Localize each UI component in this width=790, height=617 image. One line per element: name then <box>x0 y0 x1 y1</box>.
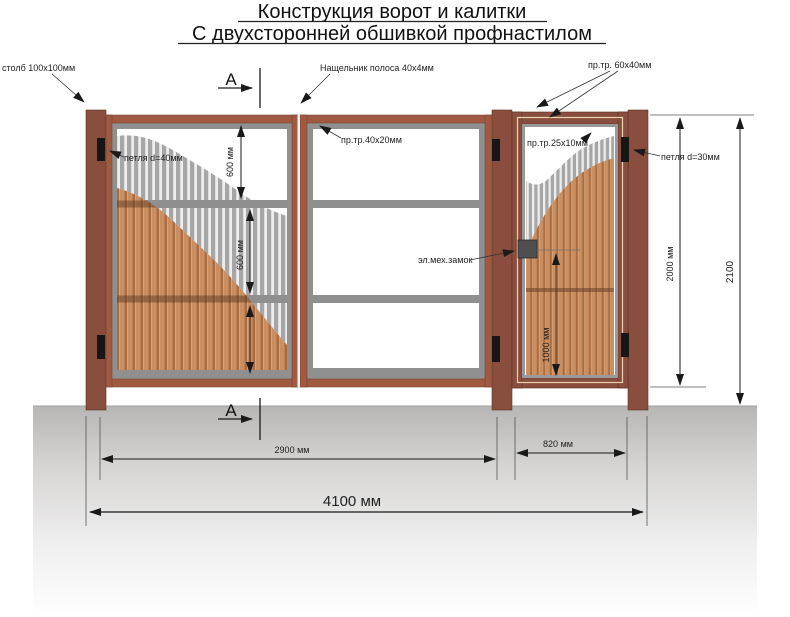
hinge-wicket-top <box>621 137 629 162</box>
cross-rail-1 <box>313 200 479 208</box>
wicket: 1000 мм <box>512 112 628 388</box>
right-post <box>628 110 648 410</box>
callout-hinge-40-label: петля d=40мм <box>124 153 183 163</box>
gate-construction-drawing: Конструкция ворот и калитки С двухсторон… <box>0 0 790 617</box>
callout-lock-label: эл.мех.замок <box>418 255 472 265</box>
hinge-wicket-bottom <box>621 333 629 357</box>
dim-panel-top-600-label: 600 мм <box>225 147 235 177</box>
title-line-1: Конструкция ворот и калитки <box>258 1 527 23</box>
title: Конструкция ворот и калитки С двухсторон… <box>178 1 606 45</box>
dim-panel-mid-600-label: 600 мм <box>235 240 245 270</box>
callout-tube-60x40: пр.тр. 60x40мм <box>537 60 651 117</box>
dim-total-width-label: 4100 мм <box>323 493 381 510</box>
callout-post: столб 100x100мм <box>2 63 84 102</box>
callout-hinge-30-label: петля d=30мм <box>661 152 720 162</box>
section-letter-top: А <box>225 70 237 89</box>
hinge-left-bottom <box>97 335 105 359</box>
dim-total-height-label: 2100 <box>725 260 736 283</box>
dim-lock-height-label: 1000 мм <box>541 328 551 363</box>
dim-wicket-width-label: 820 мм <box>543 439 573 449</box>
callout-cover-strip-label: Нащельник полоса 40x4мм <box>320 63 434 73</box>
section-marker-top <box>218 68 260 108</box>
hinge-left-top <box>97 138 105 161</box>
cross-rail-2 <box>313 295 479 303</box>
cover-strip <box>298 115 301 387</box>
ground <box>33 406 757 612</box>
drawing-page: Конструкция ворот и калитки С двухсторон… <box>0 0 790 617</box>
dim-gate-height-label: 2000 мм <box>665 247 675 282</box>
callout-tube-25x10-label: пр.тр.25x10мм <box>527 138 588 148</box>
dim-total-height: 2100 <box>725 118 740 404</box>
callout-tube-60x40-label: пр.тр. 60x40мм <box>588 60 651 70</box>
callout-cover-strip: Нащельник полоса 40x4мм <box>301 63 434 103</box>
hinge-middle-top <box>492 139 500 161</box>
right-gate-leaf <box>300 115 492 387</box>
callout-post-label: столб 100x100мм <box>2 63 75 73</box>
callout-tube-40x20-label: пр.тр.40x20мм <box>341 135 402 145</box>
title-line-2: С двухсторонней обшивкой профнастилом <box>192 23 592 45</box>
lock-body <box>518 240 537 258</box>
dim-gates-width-label: 2900 мм <box>275 445 310 455</box>
hinge-middle-bottom <box>492 336 500 362</box>
section-letter-bottom: А <box>225 401 237 420</box>
